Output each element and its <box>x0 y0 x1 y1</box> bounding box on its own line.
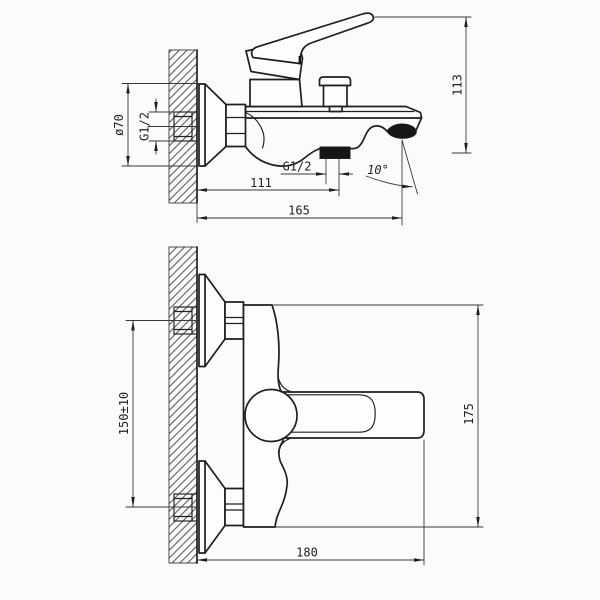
dim-spout-angle: 10° <box>366 140 418 225</box>
escutcheon-front-top <box>199 275 225 367</box>
dim-label-175: 175 <box>462 403 476 425</box>
handle-pivot-boss <box>245 390 297 442</box>
escutcheon-front-bottom <box>199 461 225 553</box>
shower-outlet-thread <box>320 147 350 159</box>
dim-wall-to-outlet: 111 <box>197 176 339 190</box>
dim-label-diameter: ø70 <box>112 114 126 136</box>
dim-label-165: 165 <box>288 204 310 218</box>
hex-nut-front-bottom <box>225 489 244 526</box>
hex-nut-front-top <box>225 302 244 339</box>
faucet-technical-drawing: ø70 G1/2 G1/2 111 165 <box>0 0 600 600</box>
dim-total-projection: 165 <box>197 203 402 223</box>
spout-underside-right <box>350 126 389 149</box>
diverter-knob <box>320 77 351 112</box>
dim-label-180: 180 <box>296 546 318 560</box>
spout-outlet <box>387 124 416 138</box>
dim-label-outlet-thread: G1/2 <box>283 160 312 174</box>
wall-section-front <box>169 247 197 563</box>
side-view: ø70 G1/2 G1/2 111 165 <box>112 13 471 225</box>
dim-label-wall-thread: G1/2 <box>138 112 152 141</box>
lever-handle-side <box>252 13 374 64</box>
spout-tip-edge <box>416 118 421 130</box>
lever-handle-front <box>276 392 424 438</box>
dim-label-angle: 10° <box>367 163 389 177</box>
hex-nut-side <box>226 105 246 147</box>
dim-label-113: 113 <box>451 74 465 96</box>
escutcheon-side <box>199 84 226 166</box>
valve-body-side <box>250 80 302 107</box>
technical-drawing-page: ø70 G1/2 G1/2 111 165 <box>0 0 600 600</box>
front-view: 175 150±10 180 <box>117 247 483 565</box>
dim-label-150: 150±10 <box>117 392 131 435</box>
dim-label-111: 111 <box>250 176 272 190</box>
dim-centers-distance: 150±10 <box>117 321 133 508</box>
